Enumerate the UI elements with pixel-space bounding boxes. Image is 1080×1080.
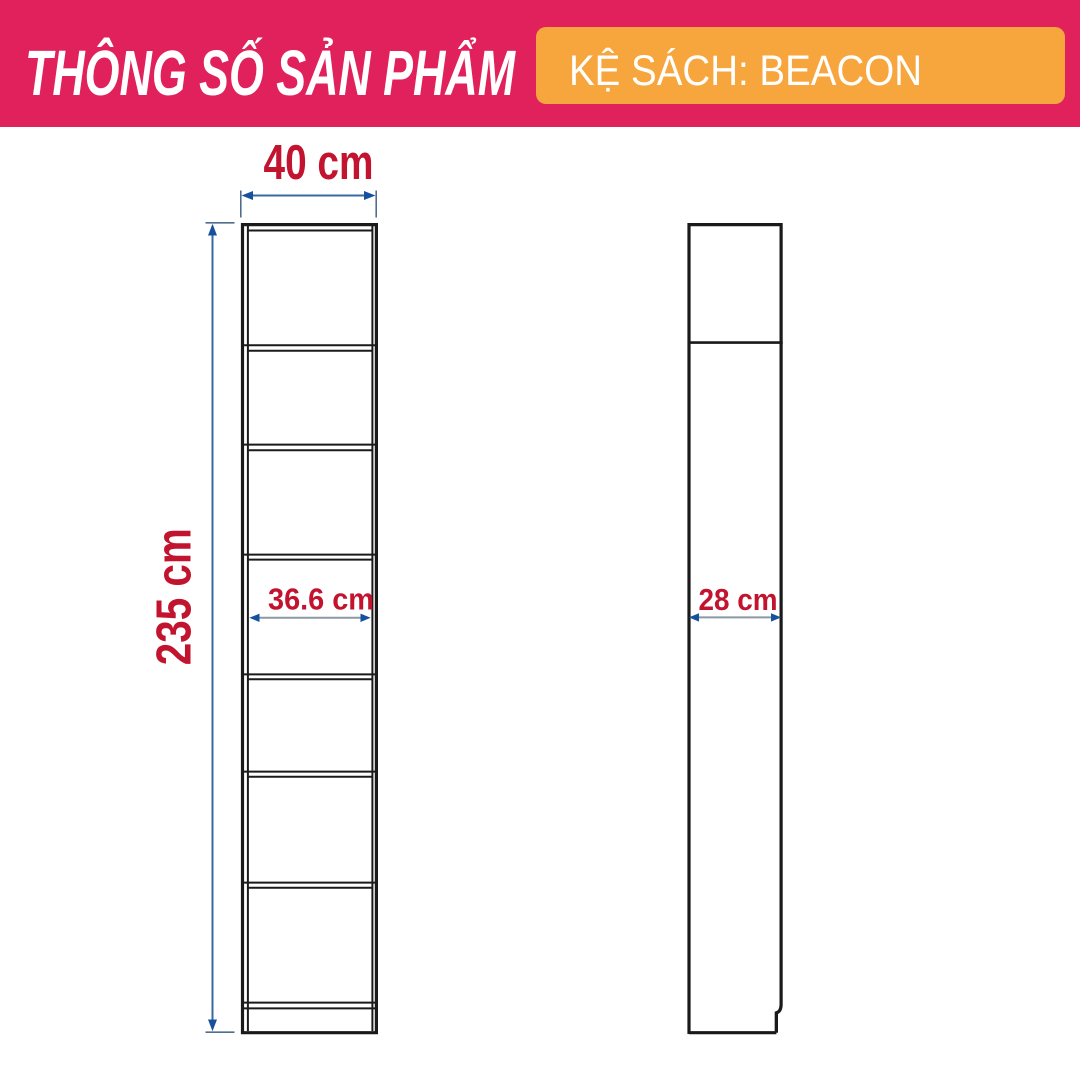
svg-text:235 cm: 235 cm [148, 528, 202, 665]
svg-text:28 cm: 28 cm [699, 582, 778, 617]
svg-text:40 cm: 40 cm [264, 136, 374, 190]
svg-text:36.6 cm: 36.6 cm [268, 582, 374, 617]
svg-text:KỆ SÁCH: BEACON: KỆ SÁCH: BEACON [569, 47, 922, 95]
svg-text:THÔNG SỐ SẢN PHẨM: THÔNG SỐ SẢN PHẨM [25, 36, 516, 109]
